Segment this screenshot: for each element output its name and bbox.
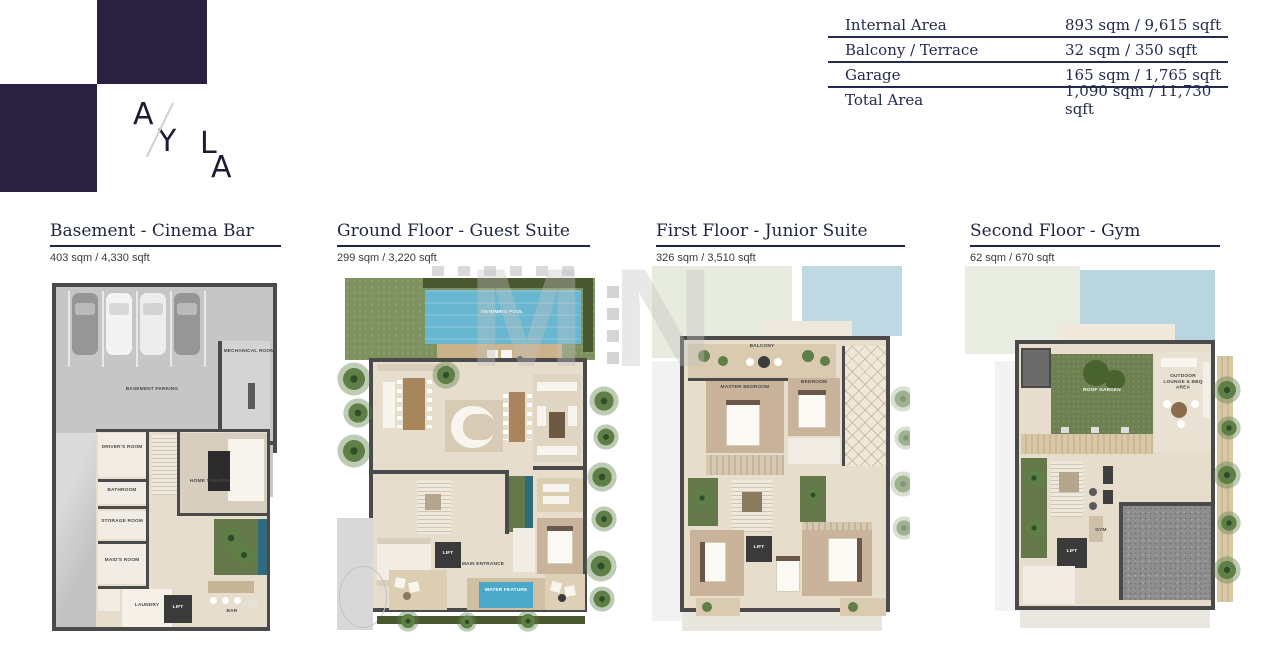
room-label-laundry: LAUNDRY [127, 603, 167, 609]
planter [848, 602, 858, 612]
room-label-lounge: OUTDOOR LOUNGE & BBQ AREA [1161, 374, 1206, 391]
palm-icon [690, 486, 714, 510]
logo-letter-y: Y [158, 127, 176, 157]
floor-area-ground: 299 sqm / 3,220 sqft [337, 252, 437, 264]
title-underline [50, 245, 281, 247]
car [140, 293, 166, 355]
floor-title-basement: Basement - Cinema Bar [50, 221, 254, 241]
floor-area-basement: 403 sqm / 4,330 sqft [50, 252, 150, 264]
room-label-bathroom: BATHROOM [101, 488, 143, 494]
room-label-parking: BASEMENT PARKING [104, 387, 200, 393]
round-table [1171, 402, 1187, 418]
floor-title-second: Second Floor - Gym [970, 221, 1140, 241]
wall-segment [273, 283, 277, 453]
room-label-bedroom: BEDROOM [796, 380, 831, 386]
row-label: Total Area [828, 91, 1065, 109]
pergola-block [432, 266, 444, 276]
palm-icon [890, 471, 910, 497]
floor-title-first: First Floor - Junior Suite [656, 221, 868, 241]
room-label-lift: LIFT [167, 605, 189, 611]
stall-line [136, 291, 138, 367]
wall-segment [52, 627, 270, 631]
courtyard-planting [509, 476, 525, 532]
mechanical-room [222, 341, 270, 441]
room-label-lift: LIFT [438, 551, 459, 557]
bed-headboard [776, 556, 800, 561]
bottom-room [1023, 566, 1075, 604]
dining-chairs [503, 394, 508, 440]
bed-headboard [798, 390, 826, 395]
kitchen-island [383, 382, 395, 428]
table-row: Total Area 1,090 sqm / 11,730 sqft [828, 88, 1228, 111]
stair-core [1059, 472, 1079, 492]
outdoor-chair [408, 581, 420, 593]
outdoor-chair [564, 585, 576, 597]
dining-chairs [527, 394, 532, 440]
row-value: 1,090 sqm / 11,730 sqft [1065, 82, 1228, 118]
theater-sofa [228, 439, 264, 501]
gym-equipment [1089, 488, 1097, 496]
dining-chairs [397, 380, 402, 428]
stair-bulkhead [1021, 348, 1051, 388]
coffee-table [549, 412, 565, 438]
theater-screen [208, 451, 230, 491]
palm-icon [1213, 376, 1241, 404]
palm-icon [587, 462, 617, 492]
stall-line [204, 291, 206, 367]
bar-stool [210, 597, 217, 604]
car [106, 293, 132, 355]
wall-segment [1119, 502, 1211, 506]
wall-segment [1015, 340, 1019, 610]
ramp-area [54, 433, 98, 627]
palm-icon [1022, 516, 1046, 540]
planter-box [1121, 427, 1129, 433]
room-label-lift: LIFT [1060, 549, 1084, 555]
room-label-theater: HOME THEATER [186, 479, 234, 485]
chair [1163, 400, 1171, 408]
row-label: Balcony / Terrace [828, 41, 1065, 59]
palm-icon [457, 612, 477, 632]
palm-icon [432, 361, 460, 389]
palm-icon [337, 362, 371, 396]
room-label-water: WATER FEATURE [484, 588, 527, 594]
wall-segment [98, 506, 146, 509]
gravel-roof [1123, 506, 1211, 600]
wall-segment [177, 513, 270, 516]
bed-headboard [547, 526, 573, 531]
wall-segment [1017, 340, 1215, 344]
plan-basement: BASEMENT PARKING MECHANICAL ROOM DRIVER'… [52, 283, 277, 631]
palm-icon [591, 506, 617, 532]
chair [1177, 420, 1185, 428]
logo-letter-a2: A [211, 153, 232, 183]
balcony-chair [774, 358, 782, 366]
row-value: 893 sqm / 9,615 sqft [1065, 16, 1228, 34]
bed [798, 390, 826, 428]
area-summary-table: Internal Area 893 sqm / 9,615 sqft Balco… [828, 13, 1228, 111]
powder-room [513, 528, 535, 572]
palm-icon [802, 484, 824, 506]
wall-segment [842, 346, 845, 466]
chair [1191, 400, 1199, 408]
palm-icon [1213, 556, 1241, 584]
room-label-gym: GYM [1090, 528, 1112, 534]
equipment [248, 383, 255, 409]
bar-table [248, 599, 258, 609]
logo-letter-a1: A [133, 100, 154, 130]
stall-line [170, 291, 172, 367]
floor-title-ground: Ground Floor - Guest Suite [337, 221, 570, 241]
palm-icon [230, 541, 258, 569]
wardrobe [802, 522, 872, 530]
row-label: Internal Area [828, 16, 1065, 34]
palm-icon [1213, 461, 1241, 489]
lounge-sofa [1161, 358, 1197, 367]
room-label-drivers: DRIVER'S ROOM [101, 445, 143, 451]
wall-segment [52, 283, 277, 287]
walk-in-closet [706, 455, 784, 475]
wall-segment [886, 336, 890, 612]
outdoor-table [558, 594, 566, 602]
gym-equipment [1089, 502, 1097, 510]
plan-second: ROOF GARDEN OUTDOOR LOUNGE & BBQ AREA GY… [965, 266, 1241, 635]
logo-square-top [97, 0, 207, 84]
courtyard-water [525, 476, 533, 532]
bed [547, 526, 573, 564]
planter [820, 356, 830, 366]
palm-icon [892, 516, 910, 540]
balcony-table [758, 356, 770, 368]
palm-icon [517, 610, 539, 632]
bathroom-2 [98, 589, 120, 611]
wall-segment [96, 429, 270, 432]
counter [377, 538, 431, 544]
room-label-lift: LIFT [749, 545, 770, 551]
row-value: 32 sqm / 350 sqft [1065, 41, 1228, 59]
double-height-void [844, 346, 886, 466]
deck-walkway [1021, 434, 1153, 454]
palm-icon [890, 386, 910, 412]
bbq-counter [1203, 362, 1210, 418]
row-label: Garage [828, 66, 1065, 84]
palm-icon [337, 434, 371, 468]
logo-square-left [0, 84, 97, 192]
staircase [152, 435, 178, 495]
armchair [537, 406, 546, 426]
room-label-mechanical: MECHANICAL ROOM [224, 349, 269, 355]
room-label-balcony: BALCONY [744, 344, 779, 350]
gym-equipment [1103, 466, 1113, 484]
planter [702, 602, 712, 612]
storage-room [98, 511, 146, 539]
palm-icon [585, 550, 617, 582]
palm-icon [894, 426, 910, 450]
balcony-chair [746, 358, 754, 366]
gym-equipment [1103, 490, 1113, 504]
outdoor-table [403, 592, 411, 600]
stair-core [425, 494, 441, 510]
sofa [537, 446, 577, 455]
watermark: MN [468, 248, 742, 388]
wall-segment [218, 341, 222, 441]
armchair [568, 406, 577, 426]
wall-segment [177, 431, 180, 515]
palm-icon [397, 610, 419, 632]
title-underline [970, 245, 1220, 247]
bed [776, 556, 800, 592]
stall-line [68, 291, 70, 367]
table-row: Balcony / Terrace 32 sqm / 350 sqft [828, 38, 1228, 63]
room-label-maids: MAID'S ROOM [101, 558, 143, 564]
car [72, 293, 98, 355]
water-feature [479, 582, 533, 608]
balcony-bottom [840, 598, 886, 616]
room-label-storage: STORAGE ROOM [101, 519, 143, 525]
dining-table [403, 378, 425, 430]
bed [726, 400, 760, 446]
shrub [1105, 370, 1125, 390]
room-label-roof-garden: ROOF GARDEN [1072, 388, 1131, 394]
wall-segment [267, 429, 270, 631]
outdoor-chair [394, 577, 406, 589]
palm-icon [343, 398, 373, 428]
palm-icon [593, 424, 619, 450]
room-label-bar: BAR [216, 609, 248, 615]
drivers-room [98, 433, 146, 477]
bed-headboard [857, 538, 862, 582]
bed-headboard [726, 400, 760, 405]
palm-icon [1217, 511, 1241, 535]
room-label-entrance: MAIN ENTRANCE [461, 562, 506, 568]
wall-segment [52, 283, 56, 631]
stair-core [742, 492, 762, 512]
wall-segment [533, 466, 585, 470]
dining-chairs [427, 380, 432, 428]
planter-box [1091, 427, 1099, 433]
bathroom [788, 438, 840, 464]
table-row: Internal Area 893 sqm / 9,615 sqft [828, 13, 1228, 38]
planter-box [1061, 427, 1069, 433]
sofa-cutout [463, 414, 495, 440]
water-feature-strip [258, 519, 267, 575]
bar-stool [234, 597, 241, 604]
wall-segment [1017, 606, 1215, 610]
car [174, 293, 200, 355]
stall-line [102, 291, 104, 367]
wall-segment [373, 470, 505, 474]
wall-segment [1119, 502, 1123, 600]
page: A Y L A Internal Area 893 sqm / 9,615 sq… [0, 0, 1280, 653]
lounge-seat [543, 496, 569, 504]
planter [802, 350, 814, 362]
palm-icon [589, 586, 615, 612]
bar-counter [208, 581, 254, 593]
dining-table-2 [509, 392, 525, 442]
palm-icon [1217, 416, 1241, 440]
bed-headboard [700, 542, 705, 582]
palm-icon [1022, 466, 1046, 490]
maids-room [98, 544, 146, 584]
floor-area-second: 62 sqm / 670 sqft [970, 252, 1054, 264]
bar-stool [222, 597, 229, 604]
lounge-seat [543, 484, 569, 492]
